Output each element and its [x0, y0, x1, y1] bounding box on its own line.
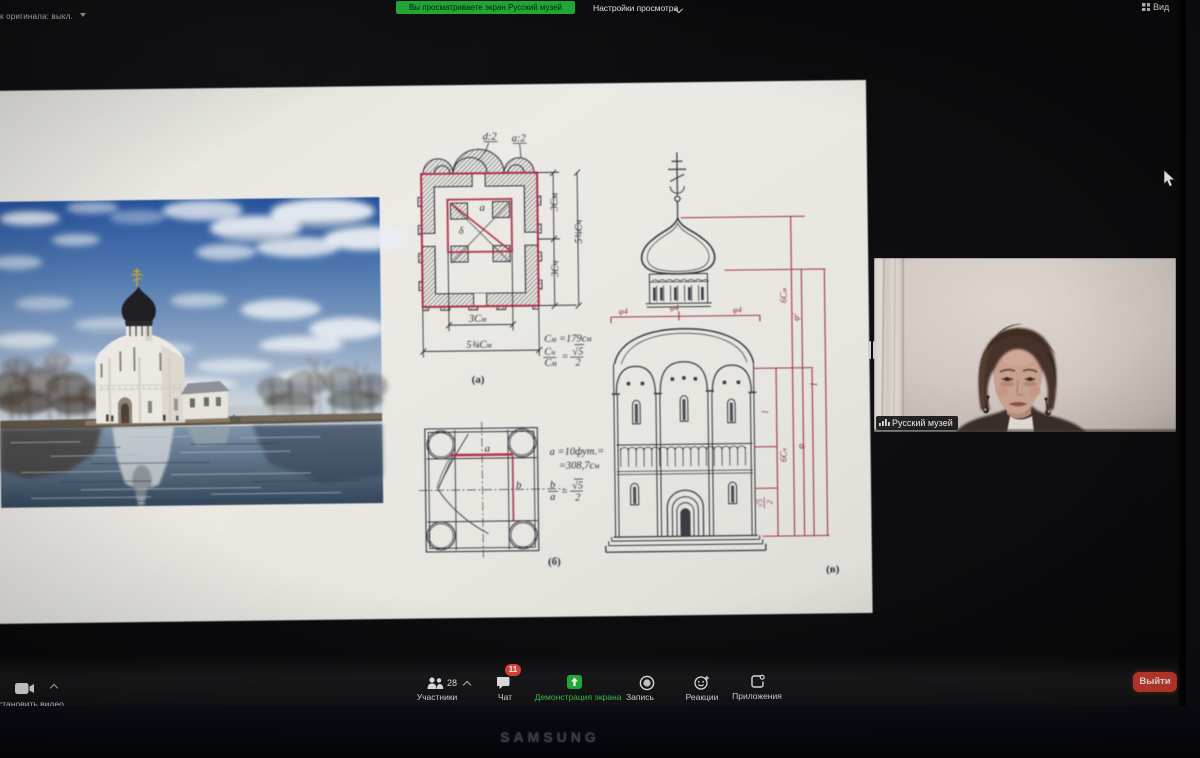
svg-text:φ4: φ4 — [733, 304, 743, 314]
svg-text:φ4: φ4 — [670, 302, 680, 312]
svg-text:φ4: φ4 — [619, 305, 629, 315]
svg-text:5¾Сч: 5¾Сч — [574, 219, 585, 243]
svg-text:=: = — [561, 486, 568, 497]
svg-text:2: 2 — [765, 500, 774, 504]
svg-text:3См: 3См — [549, 192, 560, 212]
svg-text:(в): (в) — [826, 563, 840, 575]
svg-text:5¾См: 5¾См — [466, 339, 491, 350]
svg-text:1: 1 — [809, 382, 819, 387]
svg-text:√5: √5 — [755, 498, 764, 507]
svg-text:b: b — [550, 479, 555, 490]
svg-text:См =179см: См =179см — [544, 333, 591, 345]
svg-text:6См: 6См — [779, 287, 789, 303]
svg-text:a: a — [550, 491, 555, 502]
svg-text:φ: φ — [795, 443, 805, 448]
svg-text:b: b — [516, 479, 522, 491]
svg-text:Сч: Сч — [544, 346, 555, 357]
svg-text:a =10фут.=: a =10фут.= — [550, 446, 605, 458]
svg-text:=: = — [561, 351, 568, 362]
svg-text:2: 2 — [575, 492, 581, 503]
svg-text:√5: √5 — [572, 345, 583, 357]
svg-text:См: См — [544, 357, 556, 368]
svg-text:(а): (а) — [472, 373, 485, 385]
svg-text:=308,7см: =308,7см — [559, 460, 600, 472]
svg-text:3См: 3См — [468, 313, 487, 324]
svg-text:a:2: a:2 — [512, 133, 527, 144]
svg-text:δ: δ — [459, 226, 464, 237]
svg-text:a: a — [484, 442, 490, 454]
svg-text:3Сч: 3Сч — [550, 260, 561, 278]
svg-text:(б): (б) — [548, 555, 561, 567]
svg-text:√5: √5 — [572, 479, 583, 491]
svg-text:2: 2 — [575, 357, 581, 368]
svg-text:d:2: d:2 — [483, 131, 498, 142]
svg-text:a: a — [479, 201, 485, 213]
svg-text:6Сч: 6Сч — [779, 447, 789, 462]
